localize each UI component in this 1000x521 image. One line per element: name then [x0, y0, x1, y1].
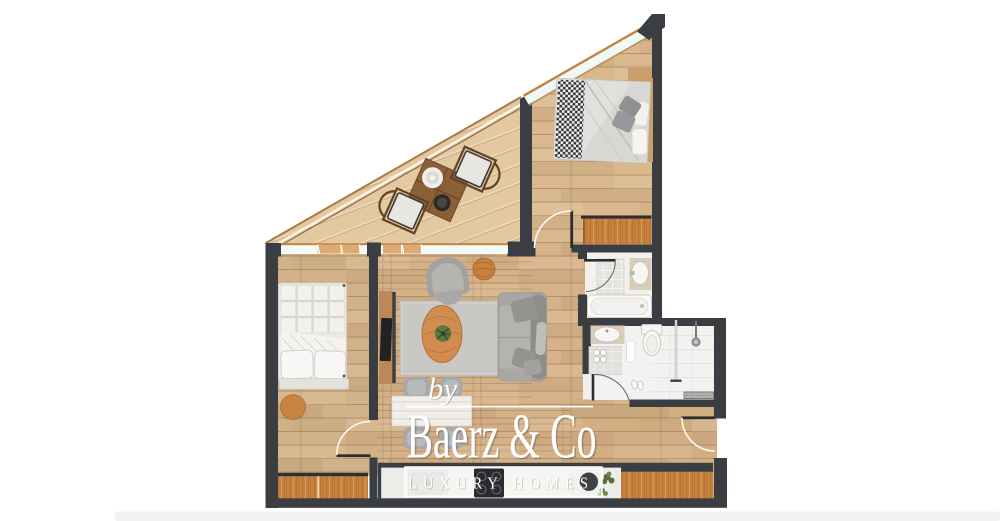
svg-text:Baerz & Co: Baerz & Co	[407, 402, 597, 472]
svg-text:LUXURY HOMES: LUXURY HOMES	[408, 474, 594, 493]
